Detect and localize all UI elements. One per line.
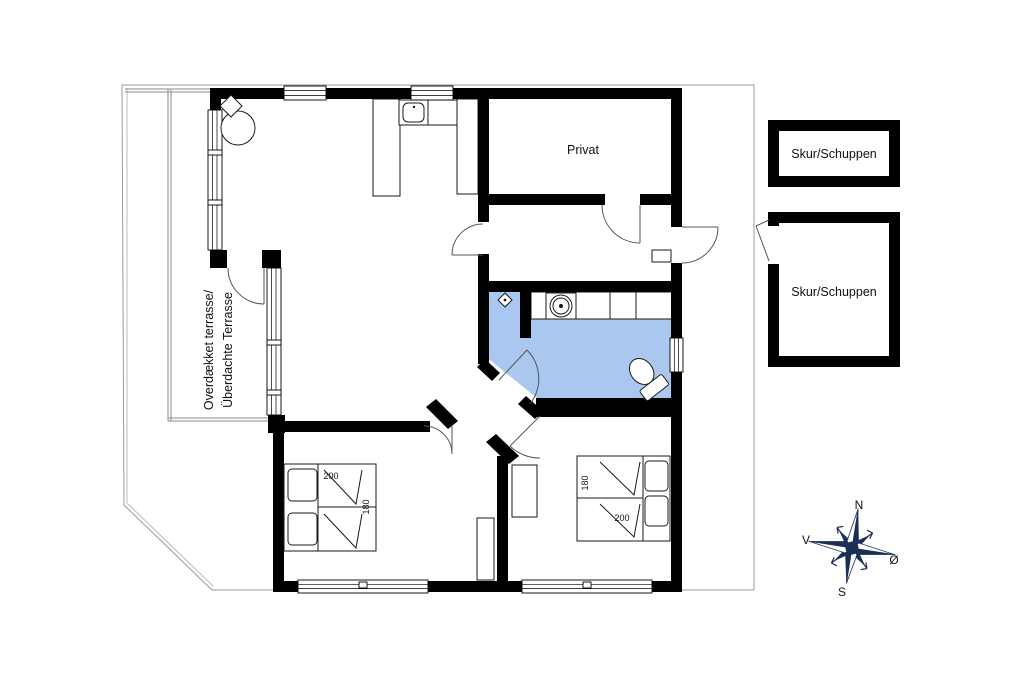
bed1-width-label: 180 — [361, 499, 371, 514]
entrance-mat — [652, 250, 671, 262]
wall-segment — [478, 292, 489, 364]
pillow — [645, 461, 668, 491]
terrace-label-line1: Overdækket terrasse/ — [202, 289, 216, 410]
floorplan-drawing: 200 180 180 200 Privat Overdækket terras… — [0, 0, 1024, 682]
wall-segment — [671, 263, 682, 338]
shed2-door-swing — [756, 220, 769, 226]
washing-machine-icon — [546, 293, 576, 319]
wall-segment — [478, 96, 489, 205]
wall-segment — [426, 399, 458, 429]
window-bottom-bedroom2 — [522, 580, 652, 593]
privat-room-label: Privat — [567, 143, 599, 157]
bed2-width-label: 180 — [580, 475, 590, 490]
wood-stove-icon — [220, 95, 255, 145]
wall-segment — [210, 250, 227, 268]
shed-2: Skur/Schuppen — [756, 212, 900, 367]
window-bottom-bedroom1 — [298, 580, 428, 593]
wardrobe-bedroom2 — [512, 465, 537, 517]
compass-west-label: V — [802, 533, 810, 547]
kitchen-counter — [373, 99, 478, 196]
door-entrance-east — [652, 227, 718, 263]
bed-bedroom2: 180 200 — [577, 456, 670, 541]
shed-1: Skur/Schuppen — [768, 120, 900, 187]
compass-south-label: S — [838, 585, 846, 599]
wall-segment — [478, 281, 682, 292]
wall-segment — [283, 421, 430, 432]
wall-segment — [497, 456, 508, 592]
wall-segment — [478, 205, 489, 222]
kitchen-sink-icon — [403, 103, 424, 122]
wall-segment — [671, 88, 682, 227]
cabinet-bedroom1 — [477, 518, 494, 580]
wall-segment — [478, 194, 605, 205]
shed1-label: Skur/Schuppen — [791, 147, 877, 161]
pillow — [288, 513, 317, 545]
bed2-length-label: 200 — [614, 513, 629, 523]
floorplan-page: 200 180 180 200 Privat Overdækket terras… — [0, 0, 1024, 682]
pillow — [645, 496, 668, 526]
bed1-length-label: 200 — [323, 471, 338, 481]
window-west-living — [208, 110, 222, 250]
compass-rose-icon: N V Ø S — [802, 498, 902, 599]
bathroom-counter — [531, 292, 672, 319]
wall-segment — [478, 254, 489, 281]
wall-segment — [273, 581, 298, 592]
window-west-lower — [267, 268, 281, 415]
wall-segment — [640, 194, 671, 205]
wall-segment — [536, 398, 682, 417]
compass-north-label: N — [855, 498, 864, 512]
window-top-kitchen — [411, 86, 453, 100]
window-top-left — [284, 86, 326, 100]
wall-segment — [520, 292, 531, 338]
compass-east-label: Ø — [889, 553, 898, 567]
wall-segment — [262, 250, 281, 268]
shed2-label: Skur/Schuppen — [791, 285, 877, 299]
door-privat — [602, 205, 640, 243]
wall-segment — [273, 421, 284, 592]
pillow — [288, 469, 317, 501]
door-living-hall — [452, 224, 483, 255]
window-east-bathroom — [670, 338, 683, 372]
bed-bedroom1: 200 180 — [284, 464, 376, 551]
terrace-label: Overdækket terrasse/ Überdachte Terrasse — [202, 289, 235, 410]
terrace-label-line2: Überdachte Terrasse — [221, 292, 235, 408]
